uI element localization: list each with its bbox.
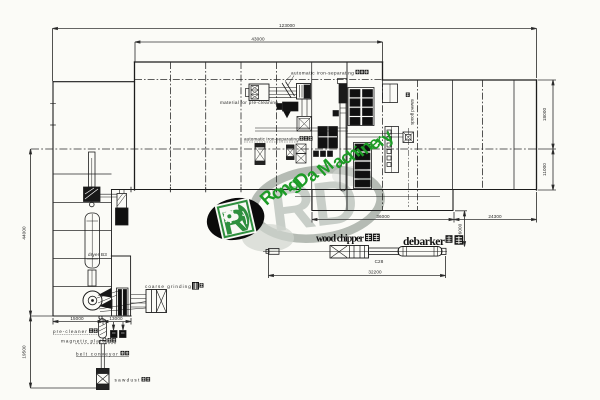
- svg-text:dryer B3: dryer B3: [88, 252, 107, 257]
- svg-text:sawdust: sawdust: [115, 378, 141, 383]
- svg-text:coarse grinding: coarse grinding: [145, 284, 191, 289]
- svg-text:sawed goods: sawed goods: [410, 99, 415, 126]
- svg-text:44000: 44000: [22, 226, 27, 240]
- svg-text:pre-cleaner: pre-cleaner: [53, 329, 87, 334]
- svg-text:debarker: debarker: [403, 236, 445, 248]
- svg-text:24300: 24300: [488, 214, 502, 219]
- svg-text:11000: 11000: [542, 163, 547, 176]
- svg-text:material for pre-cleaning: material for pre-cleaning: [220, 100, 278, 105]
- svg-text:15000: 15000: [70, 316, 84, 321]
- svg-text:belt conveyor: belt conveyor: [76, 352, 118, 357]
- svg-text:automatic iron-separating: automatic iron-separating: [244, 137, 299, 142]
- svg-text:automatic iron-separating: automatic iron-separating: [291, 71, 354, 76]
- svg-text:magnetic plate: magnetic plate: [61, 339, 105, 344]
- svg-text:13000: 13000: [109, 316, 123, 321]
- svg-text:32200: 32200: [368, 270, 382, 275]
- svg-text:123000: 123000: [279, 23, 295, 28]
- svg-text:43000: 43000: [251, 37, 265, 42]
- svg-text:18000: 18000: [542, 108, 547, 122]
- svg-text:6000: 6000: [458, 223, 463, 234]
- svg-text:36000: 36000: [376, 214, 390, 219]
- svg-text:C28: C28: [375, 259, 384, 264]
- svg-text:19500: 19500: [22, 345, 27, 359]
- svg-text:wood chipper: wood chipper: [316, 234, 365, 245]
